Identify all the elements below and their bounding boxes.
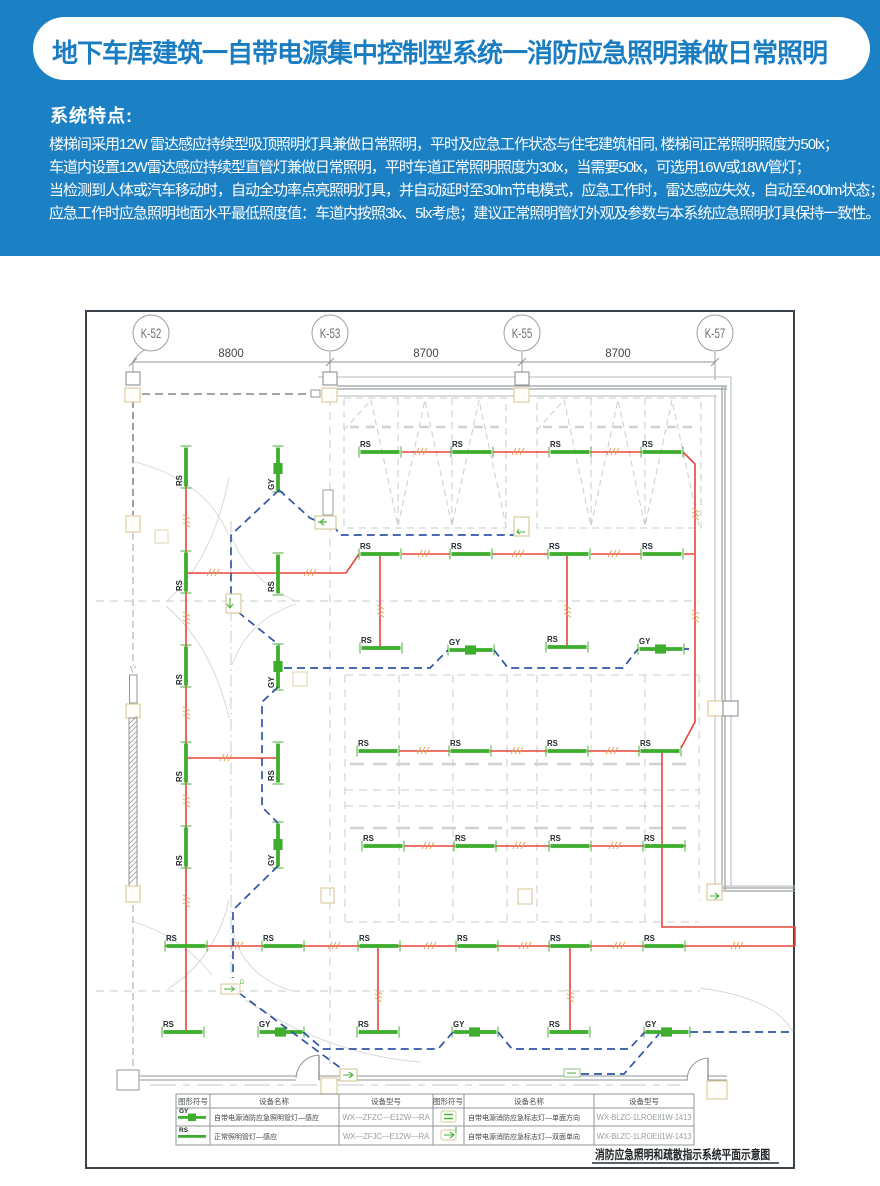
svg-text:RS: RS	[455, 834, 466, 843]
svg-text:WX-BLZC-1LROEII1W-1413: WX-BLZC-1LROEII1W-1413	[597, 1113, 692, 1122]
svg-text:WX—ZFZC—E12W—RA: WX—ZFZC—E12W—RA	[342, 1113, 430, 1122]
svg-text:设备名称: 设备名称	[514, 1096, 544, 1106]
svg-text:RS: RS	[166, 934, 177, 943]
svg-text:自带电源消防应急标志灯—双面单向: 自带电源消防应急标志灯—双面单向	[468, 1132, 580, 1141]
svg-text:8700: 8700	[413, 348, 439, 360]
svg-text:K-55: K-55	[512, 327, 533, 342]
svg-text:D: D	[240, 980, 245, 986]
svg-text:RS: RS	[358, 739, 369, 748]
svg-text:RS: RS	[359, 934, 370, 943]
svg-text:GY: GY	[449, 638, 461, 647]
svg-text:RS: RS	[267, 581, 276, 592]
svg-text:GY: GY	[645, 1020, 657, 1029]
svg-text:GY: GY	[267, 478, 276, 490]
svg-text:设备型号: 设备型号	[371, 1096, 401, 1106]
svg-text:RS: RS	[267, 770, 276, 781]
svg-text:RS: RS	[175, 475, 184, 486]
svg-text:RS: RS	[358, 1020, 369, 1029]
svg-text:RS: RS	[175, 674, 184, 685]
svg-text:K-52: K-52	[141, 327, 162, 342]
svg-text:RS: RS	[549, 1020, 560, 1029]
svg-text:自带电源消防应急标志灯—单面方向: 自带电源消防应急标志灯—单面方向	[468, 1113, 580, 1122]
svg-text:RS: RS	[550, 834, 561, 843]
svg-text:正常照明管灯—感应: 正常照明管灯—感应	[214, 1132, 277, 1141]
svg-text:RS: RS	[361, 636, 372, 645]
svg-text:WX—ZFJC—E12W—RA: WX—ZFJC—E12W—RA	[343, 1132, 430, 1141]
svg-text:图形符号: 图形符号	[433, 1096, 463, 1106]
svg-text:RS: RS	[450, 739, 461, 748]
svg-text:8800: 8800	[218, 348, 244, 360]
svg-text:RS: RS	[547, 635, 558, 644]
svg-text:RS: RS	[644, 834, 655, 843]
svg-text:GY: GY	[267, 676, 276, 688]
svg-text:RS: RS	[163, 1020, 174, 1029]
svg-text:K-57: K-57	[705, 327, 726, 342]
svg-text:RS: RS	[640, 739, 651, 748]
svg-text:RS: RS	[642, 440, 653, 449]
svg-text:图形符号: 图形符号	[178, 1096, 208, 1106]
svg-text:GY: GY	[179, 1108, 189, 1115]
svg-text:RS: RS	[360, 542, 371, 551]
svg-text:GY: GY	[267, 854, 276, 866]
svg-text:RS: RS	[642, 542, 653, 551]
svg-text:RS: RS	[179, 1127, 189, 1134]
svg-text:RS: RS	[550, 934, 561, 943]
svg-text:设备名称: 设备名称	[259, 1096, 289, 1106]
svg-text:设备型号: 设备型号	[629, 1096, 659, 1106]
svg-text:RS: RS	[263, 934, 274, 943]
svg-text:RS: RS	[549, 542, 560, 551]
svg-text:8700: 8700	[605, 348, 631, 360]
svg-text:GY: GY	[639, 637, 651, 646]
svg-text:RS: RS	[175, 771, 184, 782]
svg-text:GY: GY	[453, 1020, 465, 1029]
svg-text:RS: RS	[550, 440, 561, 449]
svg-text:RS: RS	[547, 739, 558, 748]
svg-text:K-53: K-53	[320, 327, 341, 342]
svg-text:RS: RS	[363, 834, 374, 843]
svg-text:RS: RS	[451, 542, 462, 551]
svg-text:自带电源消防应急照明管灯—感应: 自带电源消防应急照明管灯—感应	[214, 1113, 319, 1122]
svg-text:RS: RS	[452, 440, 463, 449]
svg-text:RS: RS	[175, 855, 184, 866]
svg-text:RS: RS	[360, 440, 371, 449]
svg-text:消防应急照明和疏散指示系统平面示意图: 消防应急照明和疏散指示系统平面示意图	[595, 1147, 770, 1163]
svg-text:RS: RS	[644, 934, 655, 943]
svg-text:WX-BLZC-1LROEII1W-1413: WX-BLZC-1LROEII1W-1413	[597, 1132, 692, 1141]
svg-text:GY: GY	[259, 1020, 271, 1029]
svg-text:RS: RS	[175, 580, 184, 591]
svg-text:RS: RS	[457, 934, 468, 943]
